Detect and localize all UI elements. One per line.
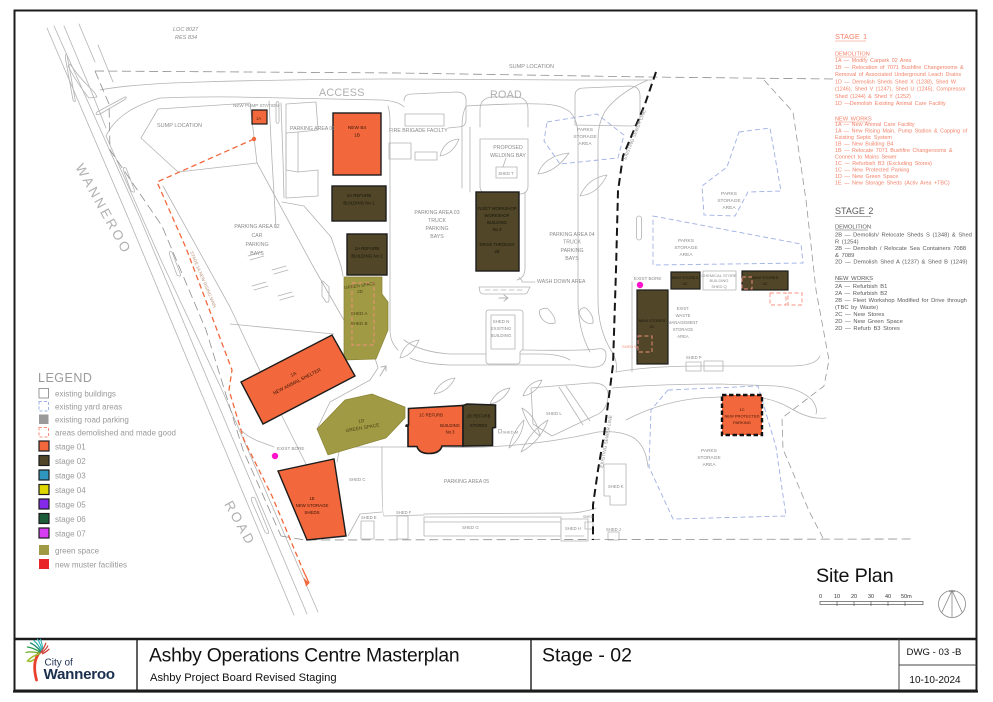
svg-text:WELDING BAY: WELDING BAY [490, 153, 526, 159]
svg-text:ROAD: ROAD [490, 89, 522, 101]
svg-text:stage 04: stage 04 [55, 486, 86, 495]
svg-text:2C — New Stores: 2C — New Stores [835, 312, 884, 318]
svg-text:1D — Demolish Sheds Shed: 1D — Demolish Sheds Shed X (1238), Shed … [835, 79, 957, 85]
svg-text:RES 834: RES 834 [175, 35, 197, 41]
svg-text:PARKING AREA 05: PARKING AREA 05 [444, 479, 489, 485]
svg-text:NEW STORAGE: NEW STORAGE [296, 503, 329, 508]
svg-text:1B — Relocate 7071 Bushfir: 1B — Relocate 7071 Bushfire Changerooms … [835, 148, 953, 154]
svg-text:1E: 1E [309, 496, 314, 501]
svg-text:PARKING AREA 04: PARKING AREA 04 [549, 232, 594, 238]
svg-text:2C: 2C [682, 281, 687, 286]
svg-text:20: 20 [851, 594, 857, 600]
svg-text:2A — Refurbish B1: 2A — Refurbish B1 [835, 284, 887, 290]
svg-text:LOC 8027: LOC 8027 [173, 27, 199, 33]
svg-text:SHED T: SHED T [498, 171, 514, 176]
svg-text:2A — Refurbish B2: 2A — Refurbish B2 [835, 291, 887, 297]
svg-text:40: 40 [885, 594, 891, 600]
svg-text:PARKING: PARKING [733, 420, 751, 425]
svg-text:PARKS: PARKS [577, 127, 593, 133]
svg-text:PARKING AREA 02: PARKING AREA 02 [234, 224, 279, 230]
svg-text:ACCESS: ACCESS [319, 87, 365, 99]
svg-text:1C: 1C [739, 407, 744, 412]
svg-text:BUILDING: BUILDING [440, 423, 460, 428]
svg-text:BUILDING No 1: BUILDING No 1 [343, 201, 375, 206]
svg-text:1C — New Protected Parking: 1C — New Protected Parking [835, 168, 909, 174]
svg-text:Stage - 02: Stage - 02 [542, 645, 632, 667]
svg-text:PARKING: PARKING [561, 248, 584, 254]
svg-text:STORAGE: STORAGE [697, 455, 720, 461]
svg-text:R (1254): R (1254) [835, 239, 859, 245]
svg-text:1A — New Rising Main, Pum: 1A — New Rising Main, Pump Station & Cap… [835, 129, 968, 135]
svg-text:NEW WORKS: NEW WORKS [835, 276, 873, 282]
svg-text:stage 03: stage 03 [55, 472, 86, 481]
svg-text:WASTE: WASTE [676, 313, 691, 318]
svg-text:MANAGEMENT: MANAGEMENT [668, 320, 698, 325]
svg-text:2B: 2B [494, 249, 499, 254]
svg-text:0: 0 [819, 594, 822, 600]
svg-text:DEMOLITION: DEMOLITION [835, 52, 870, 58]
svg-text:STAGE 2: STAGE 2 [835, 206, 873, 216]
svg-text:2A REFURB: 2A REFURB [355, 246, 379, 251]
svg-text:LEGEND: LEGEND [38, 371, 92, 385]
svg-text:NEW STORES: NEW STORES [752, 275, 779, 280]
svg-text:2D: 2D [357, 289, 363, 294]
svg-text:EXIST BORE: EXIST BORE [277, 446, 305, 451]
svg-text:No 3: No 3 [493, 227, 503, 232]
svg-text:2D — Demolish Shed A (123: 2D — Demolish Shed A (1237) & Shed B (12… [835, 260, 967, 266]
svg-text:stage 07: stage 07 [55, 530, 86, 539]
svg-text:PARKS: PARKS [721, 191, 737, 197]
svg-text:SHED G: SHED G [462, 525, 479, 530]
svg-text:BUILDING: BUILDING [491, 333, 512, 338]
svg-text:SUMP LOCATION: SUMP LOCATION [157, 123, 202, 129]
svg-text:2B — Fleet Workshop Modifi: 2B — Fleet Workshop Modified for Drive t… [835, 298, 967, 304]
svg-text:PARKING AREA 01: PARKING AREA 01 [290, 126, 335, 132]
svg-text:1C REFURB: 1C REFURB [419, 413, 443, 418]
svg-text:PARKS: PARKS [678, 238, 694, 244]
svg-text:2D — Refurb B3 Stores: 2D — Refurb B3 Stores [835, 326, 900, 332]
svg-text:Ashby Project Board Revised St: Ashby Project Board Revised Staging [150, 672, 337, 684]
svg-text:AREA: AREA [679, 252, 693, 258]
svg-text:STORAGE: STORAGE [673, 327, 694, 332]
svg-text:Connect to Mains Sewer: Connect to Mains Sewer [835, 155, 897, 161]
svg-text:DWG - 03 -B: DWG - 03 -B [907, 647, 962, 658]
svg-text:SHED Q: SHED Q [711, 284, 726, 289]
svg-text:NEW PUMP STATION: NEW PUMP STATION [233, 103, 279, 108]
svg-text:1D — New Green Space: 1D — New Green Space [835, 174, 898, 180]
svg-text:SHED M: SHED M [503, 430, 519, 435]
svg-text:stage 05: stage 05 [55, 501, 86, 510]
svg-text:SHED A: SHED A [351, 311, 369, 316]
svg-text:EXISTING: EXISTING [491, 326, 512, 331]
svg-text:SHED C: SHED C [349, 477, 366, 482]
svg-text:BUILDING: BUILDING [710, 278, 729, 283]
svg-text:areas demolished and made: areas demolished and made good [55, 429, 176, 438]
svg-text:1A: 1A [256, 116, 261, 121]
svg-text:1B — Relocation of 7071 B: 1B — Relocation of 7071 Bushfire Changer… [835, 65, 964, 71]
svg-text:Ashby Operations Centre Master: Ashby Operations Centre Masterplan [149, 646, 459, 667]
svg-text:SHED W: SHED W [622, 344, 638, 349]
svg-text:1E — New Storage Sheds (A: 1E — New Storage Sheds (Activ Area +TBC) [835, 181, 950, 187]
svg-text:stage 02: stage 02 [55, 457, 86, 466]
svg-text:STAGE 1: STAGE 1 [835, 32, 867, 41]
svg-text:No 3: No 3 [446, 430, 456, 435]
svg-text:NEW STORES: NEW STORES [672, 275, 699, 280]
svg-text:STORAGE: STORAGE [717, 198, 740, 204]
svg-text:BAYS: BAYS [565, 256, 579, 262]
svg-text:1A — Modify Carpark 02 Ar: 1A — Modify Carpark 02 Area [835, 58, 911, 64]
svg-text:2D REFURB: 2D REFURB [467, 414, 491, 419]
svg-text:1B: 1B [354, 133, 360, 139]
svg-text:& 7089: & 7089 [835, 253, 854, 259]
svg-text:stage 06: stage 06 [55, 515, 86, 524]
svg-text:SHED F: SHED F [396, 510, 412, 515]
svg-text:AREA: AREA [677, 334, 689, 339]
svg-text:SHED E: SHED E [361, 515, 377, 520]
svg-text:DRIVE THROUGH: DRIVE THROUGH [479, 242, 514, 247]
svg-text:Removal of Associated Under: Removal of Associated Underground Leach … [835, 72, 961, 78]
svg-text:1D —Demolish Existing Anima: 1D —Demolish Existing Animal Care Facili… [835, 101, 946, 107]
svg-text:PARKS: PARKS [701, 448, 717, 454]
svg-text:PROPOSED: PROPOSED [493, 145, 523, 151]
svg-text:AREA: AREA [702, 462, 716, 468]
svg-text:Wanneroo: Wanneroo [44, 666, 115, 683]
svg-text:1B — New Building B4: 1B — New Building B4 [835, 142, 894, 148]
svg-text:STORAGE: STORAGE [573, 134, 596, 140]
svg-text:(1246), Shed V (1247), She: (1246), Shed V (1247), Shed U (1245), Co… [835, 87, 966, 93]
svg-text:2B — Demolish/ Relocate Sh: 2B — Demolish/ Relocate Sheds S (1348) &… [835, 233, 972, 239]
svg-text:NEW STORES: NEW STORES [639, 318, 666, 323]
svg-text:AREA: AREA [722, 205, 736, 211]
svg-text:SHEDS: SHEDS [304, 510, 319, 515]
svg-text:FIRE BRIGADE FACILTY: FIRE BRIGADE FACILTY [389, 128, 448, 134]
svg-text:BAYS: BAYS [250, 251, 264, 257]
svg-text:STORAGE: STORAGE [674, 245, 697, 251]
svg-text:1A — New Animal Care Faci: 1A — New Animal Care Facility [835, 122, 915, 128]
svg-text:SHED H: SHED H [565, 526, 581, 531]
svg-text:TRUCK: TRUCK [563, 239, 581, 245]
svg-text:Existing Septic System: Existing Septic System [835, 135, 892, 141]
svg-text:TRUCK: TRUCK [428, 218, 446, 224]
svg-text:existing road parking: existing road parking [55, 416, 129, 425]
svg-text:Shed (1244) & Shed Y (125: Shed (1244) & Shed Y (1252) [835, 94, 911, 100]
svg-text:BUILDING No 2: BUILDING No 2 [351, 254, 383, 259]
svg-text:BUILDING: BUILDING [487, 220, 507, 225]
svg-text:STORES: STORES [470, 423, 487, 428]
svg-text:1C — Refurbish B3 (Excludi: 1C — Refurbish B3 (Excluding Stores) [835, 161, 932, 167]
svg-text:PARKING: PARKING [426, 226, 449, 232]
svg-text:FLEET WORKSHOP: FLEET WORKSHOP [477, 206, 516, 211]
svg-text:2C: 2C [649, 324, 654, 329]
svg-text:CAR: CAR [252, 233, 263, 239]
svg-text:EXIST.: EXIST. [677, 306, 690, 311]
svg-text:PARKING AREA 03: PARKING AREA 03 [414, 210, 459, 216]
svg-text:Site Plan: Site Plan [816, 565, 893, 587]
svg-text:SHED P: SHED P [686, 355, 702, 360]
svg-text:NEW B4: NEW B4 [348, 125, 367, 131]
svg-text:DEMOLITION: DEMOLITION [835, 225, 871, 231]
svg-text:NEW PROTECTED: NEW PROTECTED [724, 414, 759, 419]
svg-text:EXIST BORE: EXIST BORE [634, 276, 662, 281]
svg-text:green space: green space [55, 547, 100, 556]
svg-text:50m: 50m [901, 594, 912, 600]
svg-text:2A REFURB: 2A REFURB [347, 193, 371, 198]
svg-text:2B — Demolish / Relocate: 2B — Demolish / Relocate Sea Containers … [835, 246, 966, 252]
svg-text:SHED B: SHED B [350, 321, 367, 326]
svg-text:stage 01: stage 01 [55, 443, 86, 452]
svg-text:10: 10 [834, 594, 840, 600]
svg-text:AREA: AREA [578, 141, 592, 147]
svg-text:PARKING: PARKING [246, 242, 269, 248]
svg-text:SHED K: SHED K [608, 484, 624, 489]
svg-text:10-10-2024: 10-10-2024 [909, 675, 961, 686]
svg-text:(TBC by Waste): (TBC by Waste) [835, 305, 878, 311]
svg-text:2C: 2C [762, 281, 767, 286]
svg-text:SHED N: SHED N [493, 319, 510, 324]
svg-text:WORKSHOP: WORKSHOP [485, 213, 510, 218]
svg-text:2D — New Green Space: 2D — New Green Space [835, 319, 903, 325]
svg-text:new muster facilities: new muster facilities [55, 561, 127, 570]
svg-text:SHED J: SHED J [606, 527, 621, 532]
svg-text:existing yard areas: existing yard areas [55, 403, 122, 412]
svg-text:SUMP LOCATION: SUMP LOCATION [509, 64, 554, 70]
svg-text:SHED: SHED [583, 515, 594, 519]
svg-text:BAYS: BAYS [430, 234, 444, 240]
svg-text:WASH DOWN AREA: WASH DOWN AREA [537, 279, 586, 285]
svg-text:SHED L: SHED L [546, 411, 562, 416]
svg-text:existing buildings: existing buildings [55, 390, 116, 399]
svg-text:30: 30 [868, 594, 874, 600]
